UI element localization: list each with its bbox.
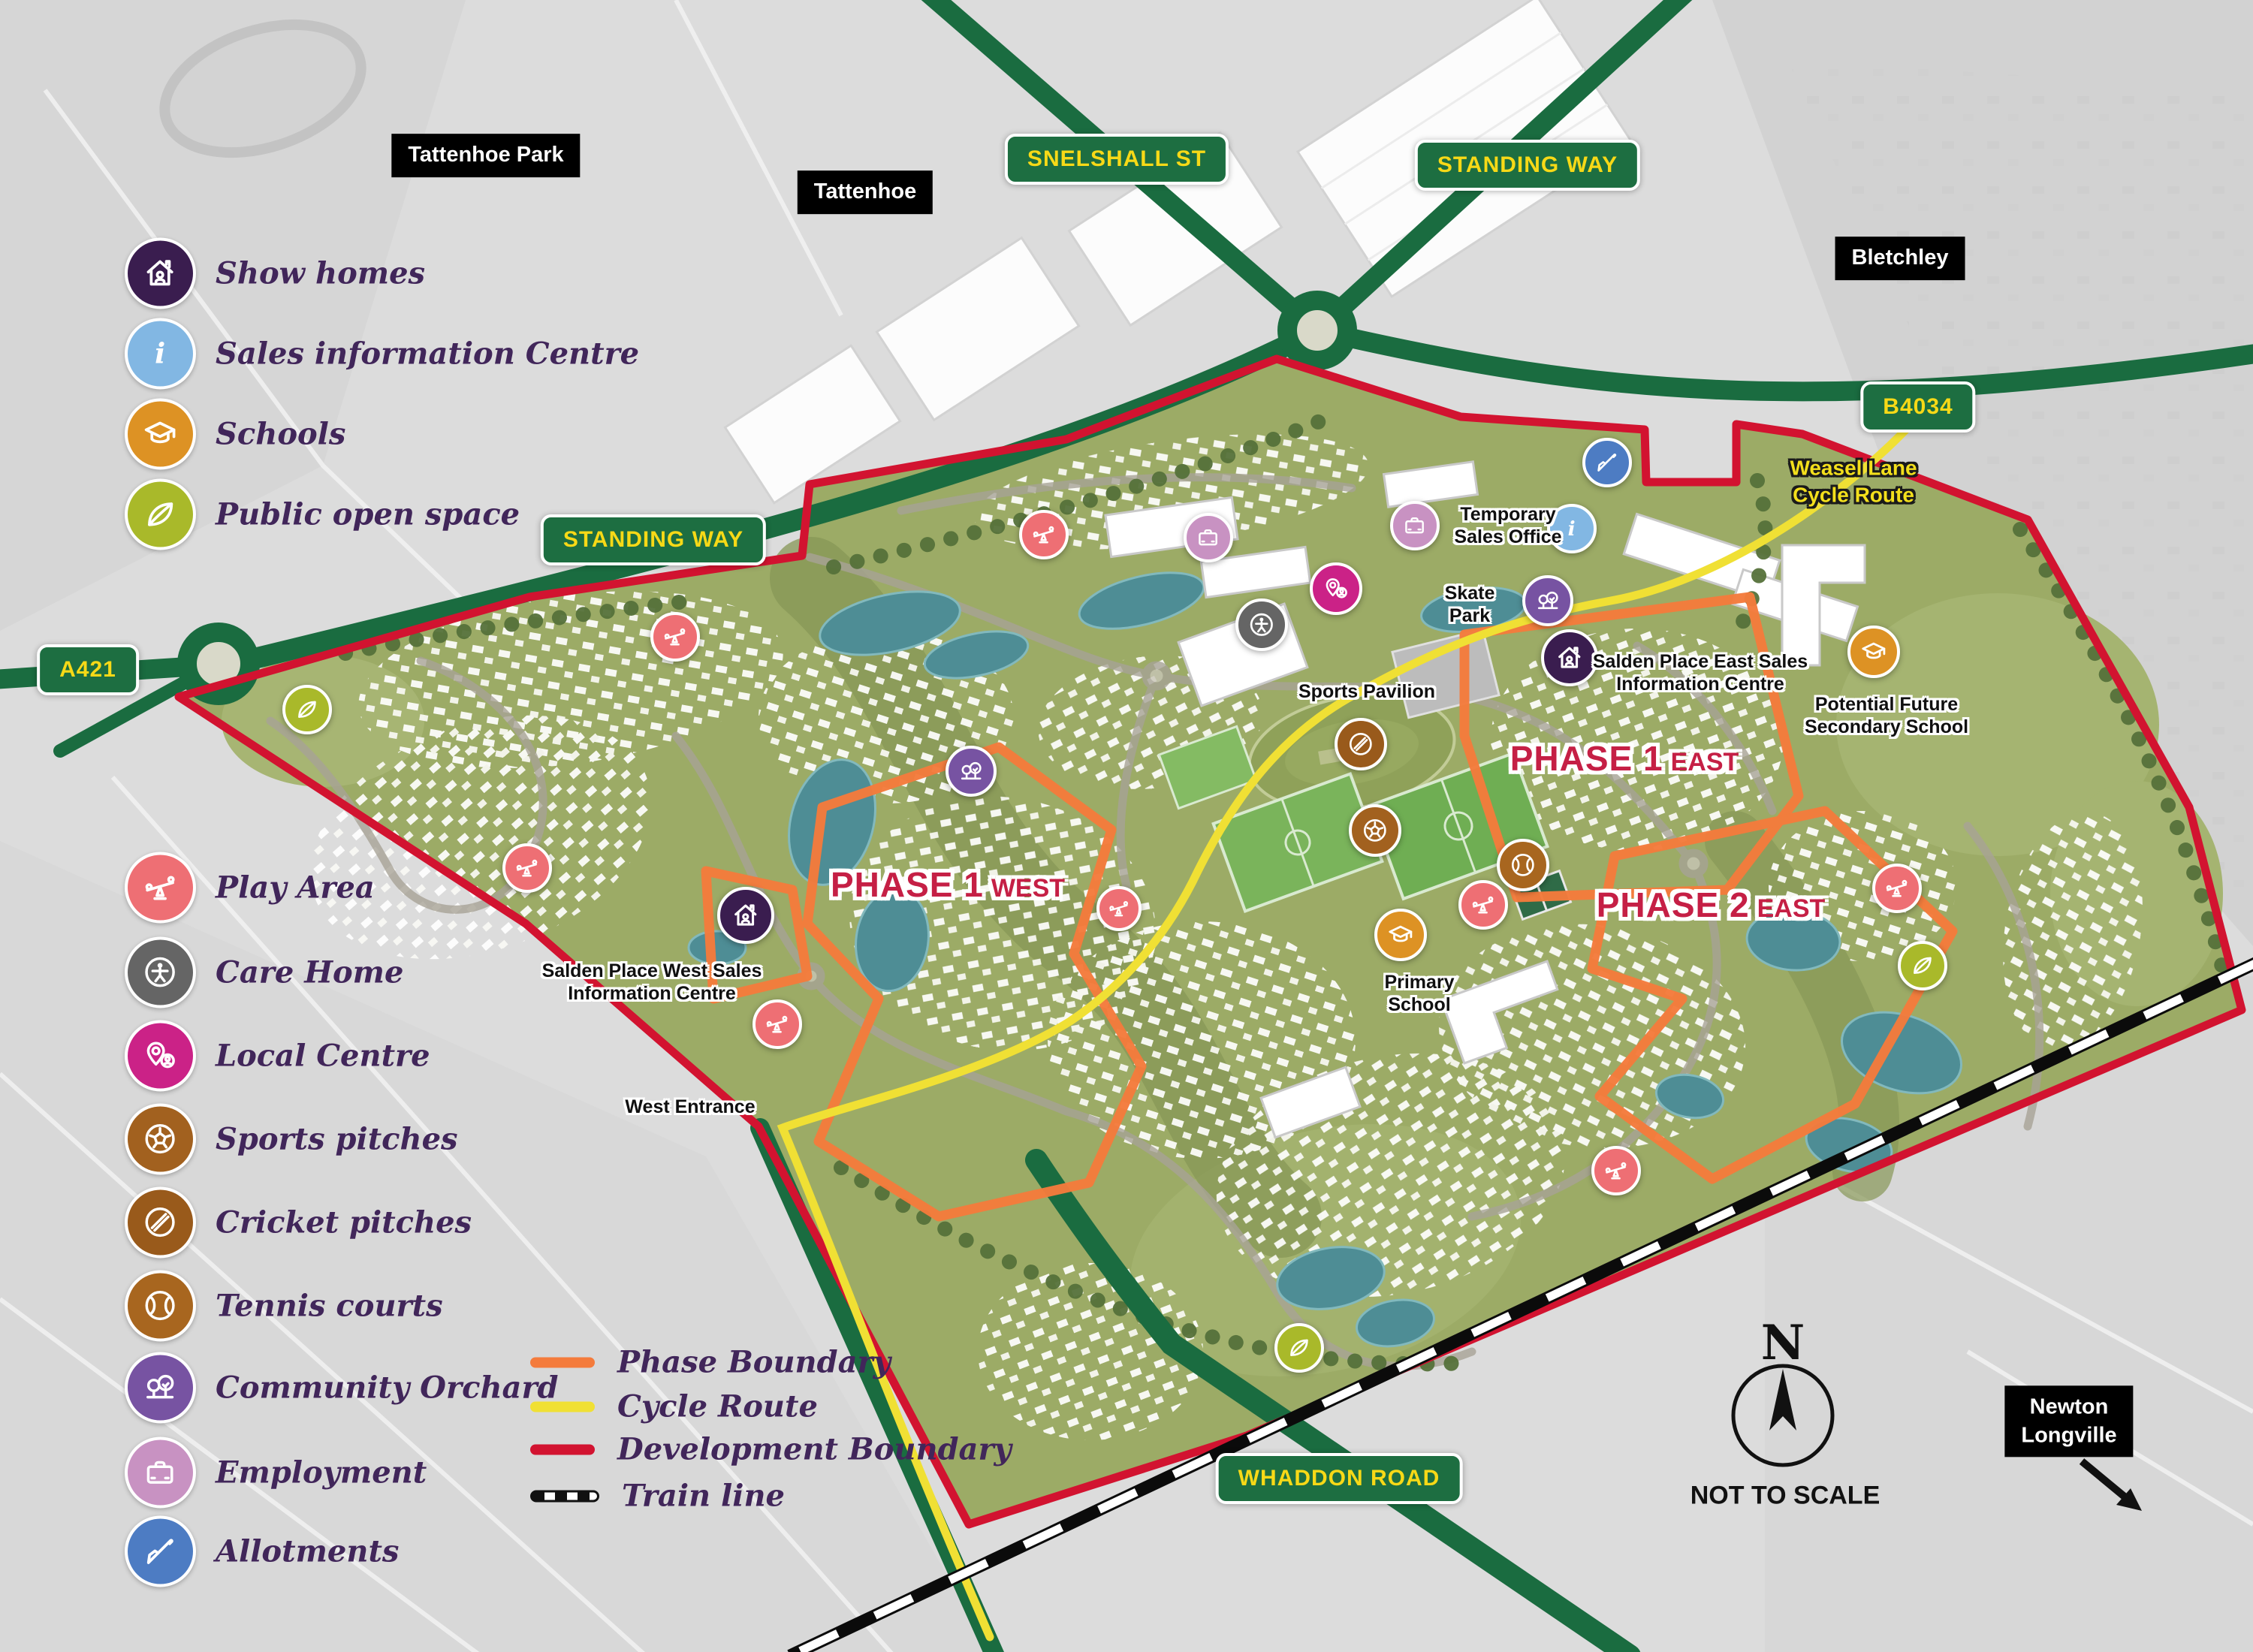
road-sign-whaddon-road: WHADDON ROAD: [1216, 1453, 1463, 1504]
road-sign-a421: A421: [37, 644, 139, 695]
route-label-weasel-lane: Weasel LaneCycle Route: [1790, 455, 1917, 510]
phase-label-sub: EAST: [1757, 894, 1826, 923]
phase-label-phase-1-east: PHASE 1EAST: [1510, 738, 1739, 779]
phase-label-sub: EAST: [1671, 748, 1739, 776]
map-label-line: Temporary: [1454, 503, 1561, 526]
not-to-scale-note: NOT TO SCALE: [1691, 1482, 1881, 1511]
road-sign-b4034: B4034: [1860, 381, 1975, 433]
map-label-line: School: [1384, 993, 1454, 1016]
map-label-salden-place-west-sales: Salden Place West SalesInformation Centr…: [542, 960, 762, 1005]
map-label-primary: PrimarySchool: [1384, 971, 1454, 1016]
phase-label-main: PHASE 1: [831, 865, 984, 904]
place-label-tattenhoe: Tattenhoe: [798, 170, 933, 214]
map-label-line: Secondary School: [1805, 716, 1968, 738]
road-sign-standing-way: STANDING WAY: [541, 514, 766, 565]
place-label-line: Newton: [2021, 1393, 2116, 1421]
map-label-temporary: TemporarySales Office: [1454, 503, 1561, 548]
phase-label-phase-2-east: PHASE 2EAST: [1597, 885, 1826, 925]
map-label-line: Salden Place East Sales: [1593, 650, 1808, 673]
map-label-line: West Entrance: [625, 1096, 755, 1118]
map-label-line: Skate: [1445, 582, 1495, 604]
map-label-west-entrance: West Entrance: [625, 1096, 755, 1118]
map-label-potential-future: Potential FutureSecondary School: [1805, 693, 1968, 738]
map-label-line: Sports Pavilion: [1298, 680, 1435, 703]
route-label-line: Weasel Lane: [1790, 455, 1917, 482]
compass-north-letter: N: [1761, 1315, 1805, 1371]
place-label-tattenhoe-park: Tattenhoe Park: [391, 134, 580, 177]
map-label-line: Potential Future: [1805, 693, 1968, 716]
place-label-line: Tattenhoe Park: [408, 141, 563, 170]
masterplan: Show homesSales information CentreSchool…: [0, 0, 2253, 1652]
phase-label-sub: WEST: [991, 874, 1065, 903]
place-label-bletchley: Bletchley: [1835, 237, 1965, 280]
map-label-salden-place-east-sales: Salden Place East SalesInformation Centr…: [1593, 650, 1808, 695]
road-sign-snelshall-st: SNELSHALL ST: [1005, 134, 1229, 185]
place-label-line: Bletchley: [1852, 244, 1949, 273]
compass-needle-icon: [1769, 1369, 1796, 1430]
map-label-sports-pavilion: Sports Pavilion: [1298, 680, 1435, 703]
map-label-line: Sales Office: [1454, 526, 1561, 548]
map-label-line: Information Centre: [1593, 673, 1808, 695]
map-label-line: Information Centre: [542, 982, 762, 1005]
phase-label-phase-1-west: PHASE 1WEST: [831, 864, 1065, 905]
map-label-line: Park: [1445, 604, 1495, 627]
compass: N: [1693, 1303, 1873, 1498]
map-labels-layer: SNELSHALL STSTANDING WAYSTANDING WAYA421…: [0, 0, 2253, 1652]
map-label-line: Primary: [1384, 971, 1454, 993]
place-label-line: Tattenhoe: [814, 178, 916, 206]
phase-label-main: PHASE 2: [1597, 885, 1750, 924]
road-sign-standing-way: STANDING WAY: [1415, 140, 1640, 191]
place-label-line: Longville: [2021, 1421, 2116, 1450]
map-label-skate: SkatePark: [1445, 582, 1495, 627]
phase-label-main: PHASE 1: [1510, 739, 1663, 778]
map-label-line: Salden Place West Sales: [542, 960, 762, 982]
place-label-newton-longville: NewtonLongville: [2004, 1385, 2133, 1457]
route-label-line: Cycle Route: [1790, 482, 1917, 509]
